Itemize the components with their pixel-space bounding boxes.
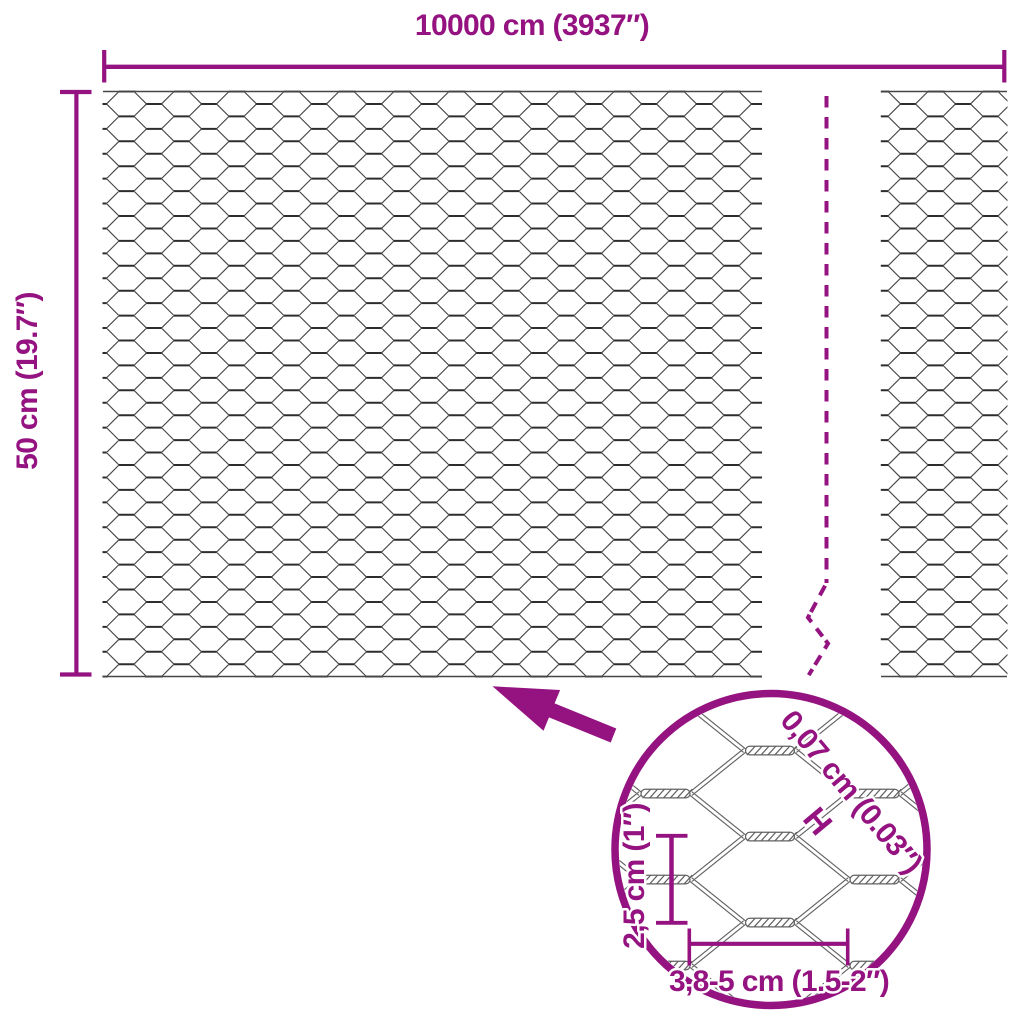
svg-text:10000 cm (3937″): 10000 cm (3937″) [415, 9, 649, 42]
svg-text:2,5 cm (1″): 2,5 cm (1″) [618, 803, 651, 949]
svg-text:3,8-5 cm (1.5-2″): 3,8-5 cm (1.5-2″) [669, 965, 889, 998]
svg-text:50 cm (19.7″): 50 cm (19.7″) [11, 292, 44, 470]
